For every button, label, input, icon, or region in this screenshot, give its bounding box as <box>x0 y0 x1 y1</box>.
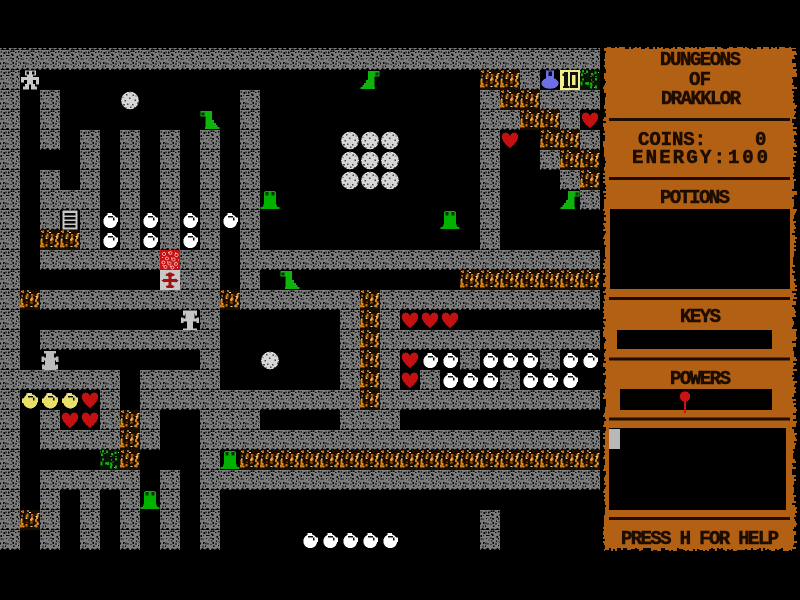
svg-text:DRAKKLOR: DRAKKLOR <box>661 88 742 110</box>
svg-text:100: 100 <box>728 147 768 169</box>
svg-text:DUNGEONS: DUNGEONS <box>660 49 741 71</box>
svg-text:KEYS: KEYS <box>680 306 721 328</box>
svg-text:PRESS H FOR HELP: PRESS H FOR HELP <box>621 528 779 550</box>
svg-text:POWERS: POWERS <box>670 368 731 390</box>
svg-text:POTIONS: POTIONS <box>660 187 730 209</box>
svg-text:ENERGY:: ENERGY: <box>632 147 725 169</box>
